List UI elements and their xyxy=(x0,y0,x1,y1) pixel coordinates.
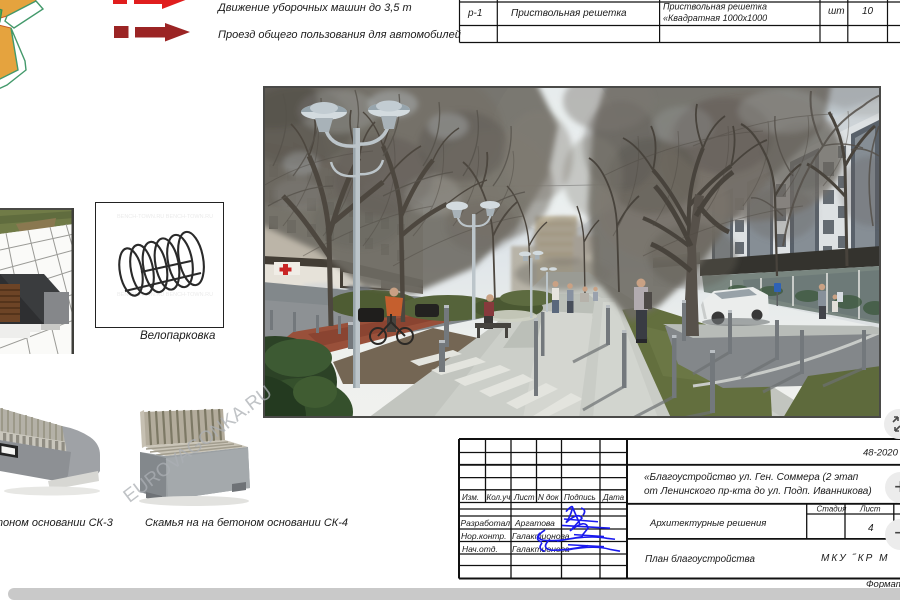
svg-text:Приствольная решетка: Приствольная решетка xyxy=(663,2,767,12)
svg-text:МКУ ˝КР М: МКУ ˝КР М xyxy=(821,552,889,564)
svg-text:Дата: Дата xyxy=(602,493,625,502)
svg-text:Изм.: Изм. xyxy=(462,493,479,502)
svg-text:«Квадратная 1000х1000: «Квадратная 1000х1000 xyxy=(663,13,767,23)
svg-text:10: 10 xyxy=(862,6,874,17)
svg-text:Стадия: Стадия xyxy=(817,505,848,514)
svg-text:N док: N док xyxy=(538,493,560,502)
svg-text:Архитектурные решения: Архитектурные решения xyxy=(649,518,766,529)
svg-text:Лист: Лист xyxy=(859,505,881,514)
svg-text:«Благоустройство ул. Ген. Сом: «Благоустройство ул. Ген. Соммера (2 эта… xyxy=(644,472,859,483)
svg-text:шт: шт xyxy=(828,6,845,17)
svg-text:Лист: Лист xyxy=(513,493,535,502)
svg-text:Нач.отд.: Нач.отд. xyxy=(462,544,498,554)
svg-text:Кол.уч: Кол.уч xyxy=(487,493,511,502)
svg-text:48-2020: 48-2020 xyxy=(863,448,899,459)
svg-text:Нор.контр.: Нор.контр. xyxy=(461,531,506,541)
svg-text:BENCH-TOWN.RU BENCH-TOWN.RU: BENCH-TOWN.RU BENCH-TOWN.RU xyxy=(117,214,213,220)
svg-text:от Ленинского пр-кта до ул. По: от Ленинского пр-кта до ул. Подп. Иванни… xyxy=(644,486,872,497)
svg-text:4: 4 xyxy=(868,523,874,534)
svg-text:Подпись: Подпись xyxy=(564,493,596,502)
svg-text:Приствольная решетка: Приствольная решетка xyxy=(511,8,627,19)
svg-text:План благоустройства: План благоустройства xyxy=(645,554,755,565)
svg-text:Аргатова: Аргатова xyxy=(514,518,555,528)
svg-text:Разработал: Разработал xyxy=(461,518,511,528)
svg-text:р-1: р-1 xyxy=(467,8,482,19)
